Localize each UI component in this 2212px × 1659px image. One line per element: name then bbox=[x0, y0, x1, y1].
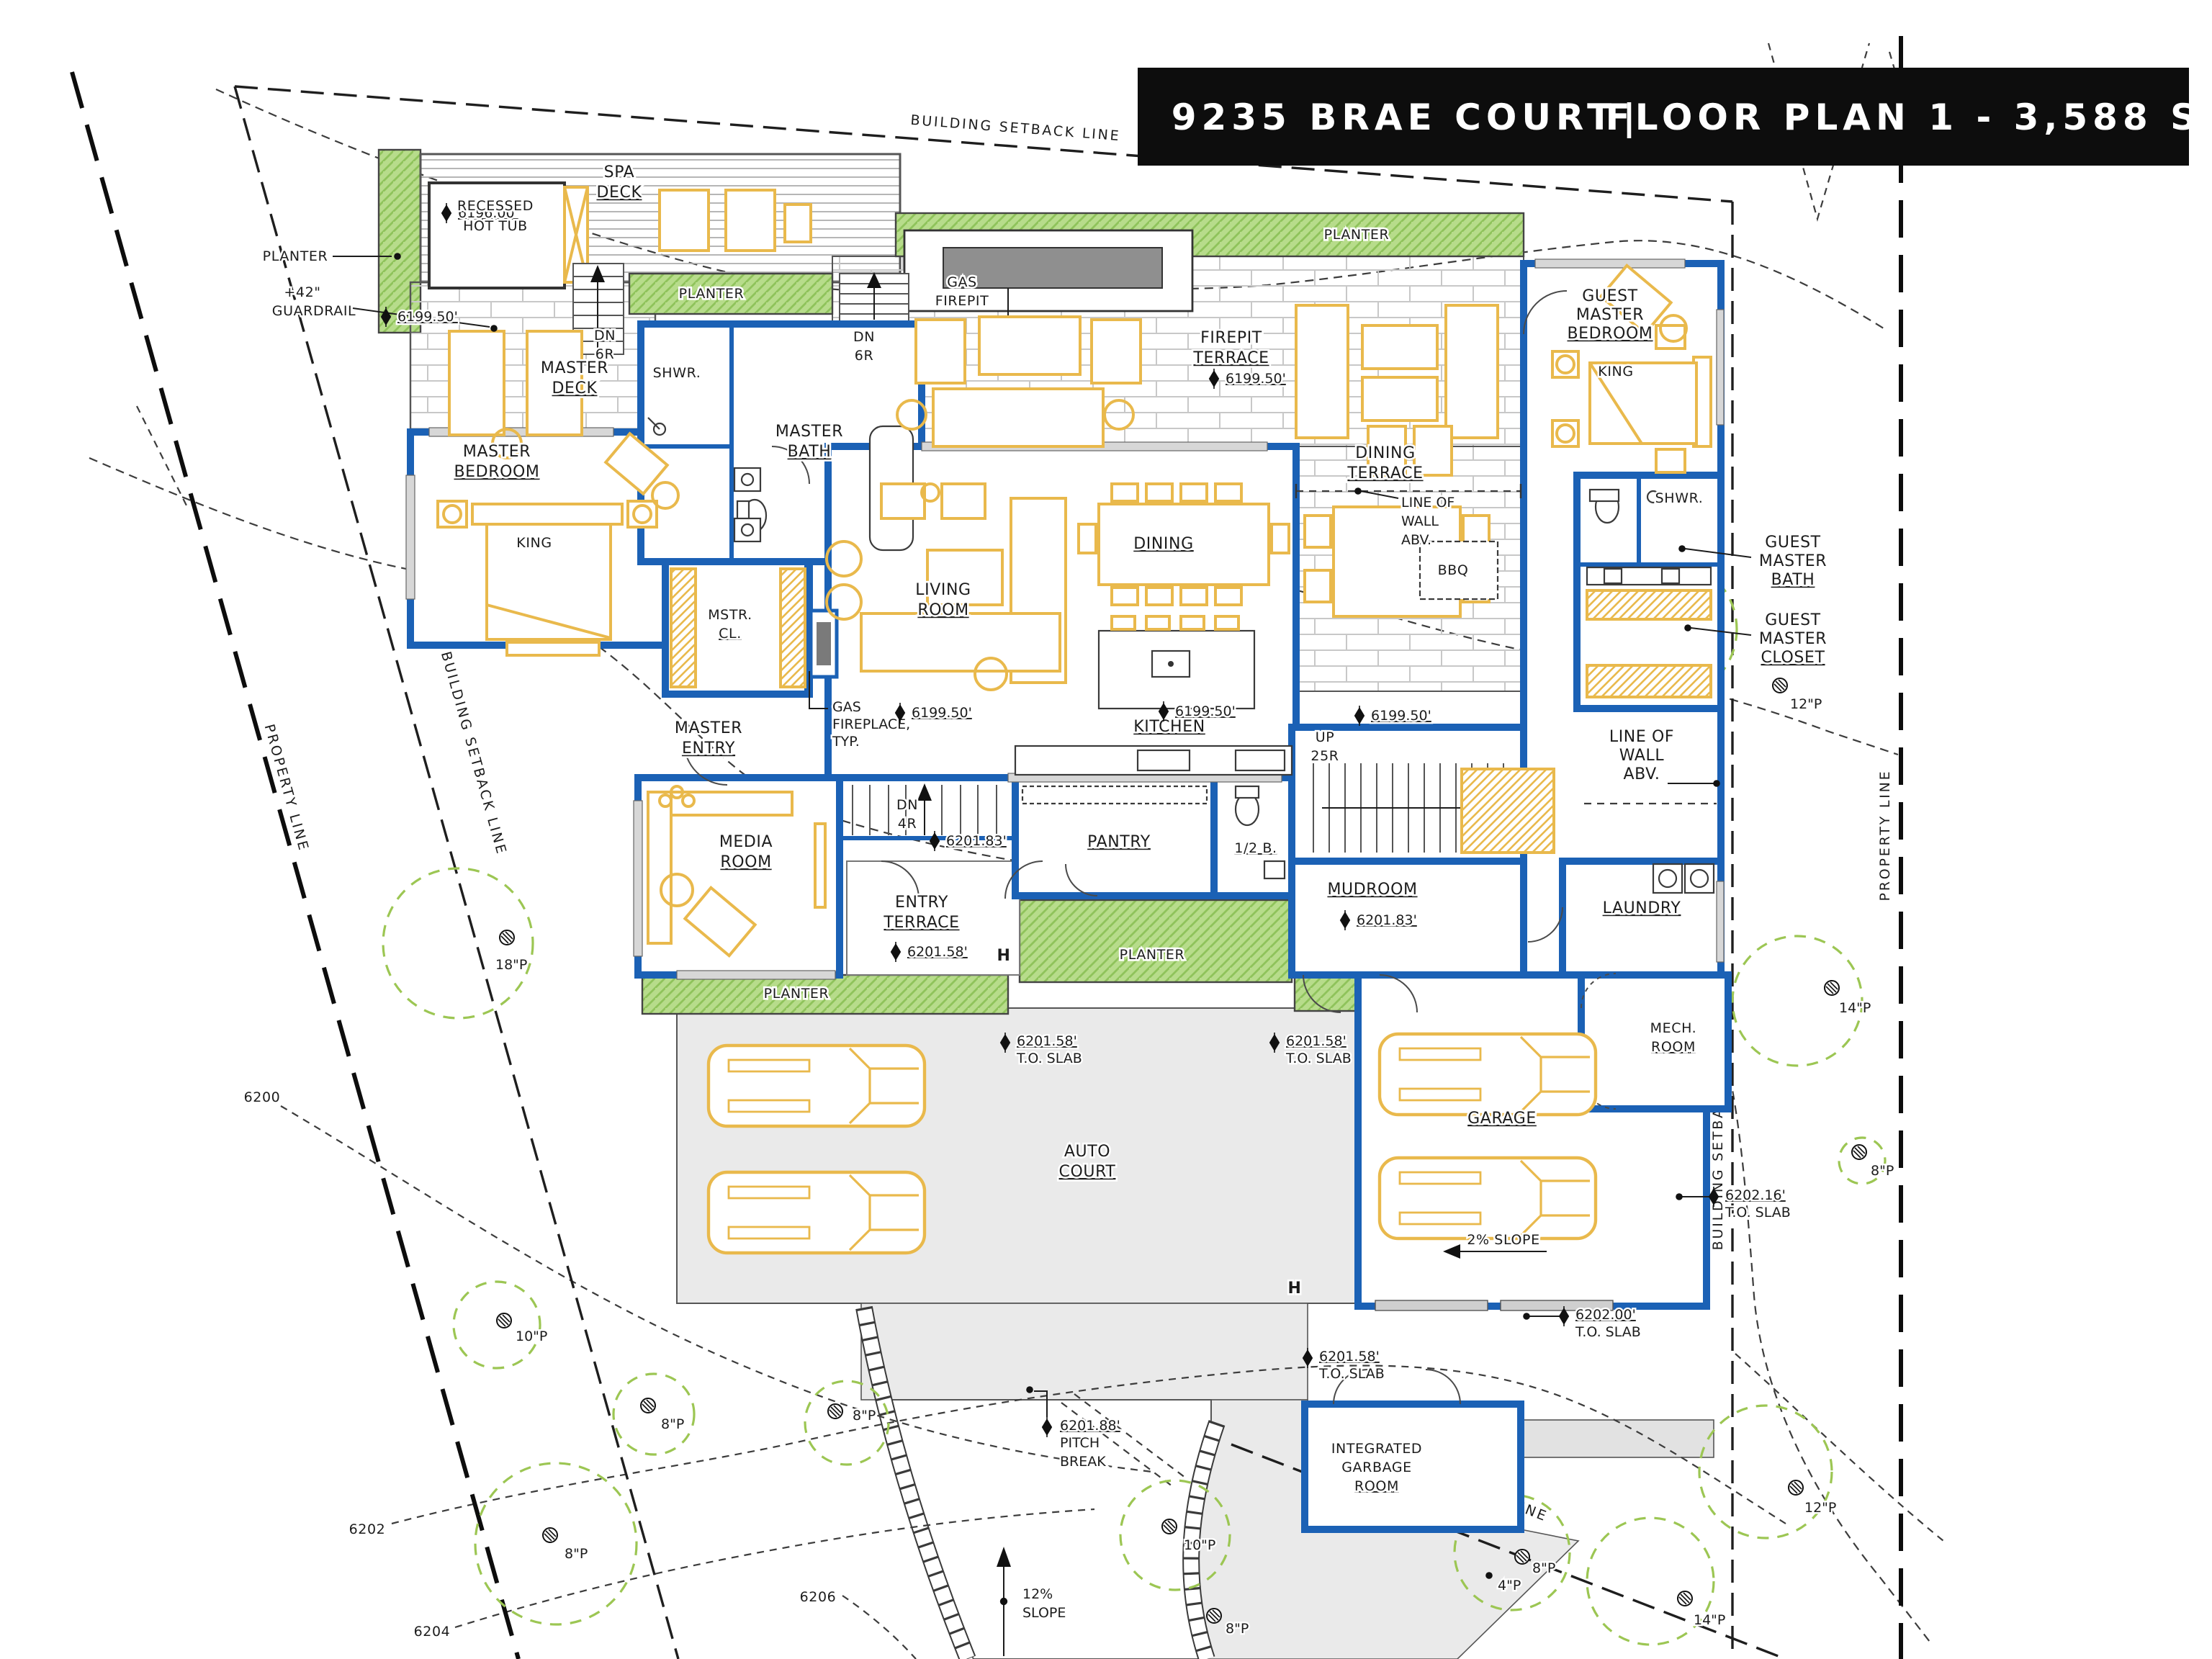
note-gas-fireplace: TYP. bbox=[832, 734, 860, 750]
tree-label-8p: 8"P bbox=[1871, 1163, 1894, 1179]
setback-label-left: BUILDING SETBACK LINE bbox=[438, 649, 510, 857]
label-master-bedroom: MASTER bbox=[463, 443, 531, 461]
label-garbage: ROOM bbox=[1354, 1478, 1399, 1494]
label-guest-closet: CLOSET bbox=[1761, 649, 1825, 667]
label-gas-firepit: FIREPIT bbox=[935, 293, 989, 309]
stair-spa-b bbox=[840, 272, 909, 323]
elev-garage-upper: 6202.16' bbox=[1725, 1187, 1786, 1203]
label-guardrail: GUARDRAIL bbox=[272, 303, 356, 319]
setback-label-top: BUILDING SETBACK LINE bbox=[910, 112, 1122, 144]
to-slab: T.O. SLAB bbox=[1575, 1324, 1641, 1340]
label-auto-court: AUTO bbox=[1064, 1143, 1110, 1161]
label-kitchen: KITCHEN bbox=[1133, 718, 1205, 736]
label-auto-court: COURT bbox=[1059, 1163, 1116, 1181]
tree-label-8p: 8"P bbox=[565, 1546, 588, 1562]
elev-living: 6199.50' bbox=[912, 705, 972, 721]
floor-plan-sheet: BUILDING SETBACK LINE PROPERTY LINE BUIL… bbox=[0, 0, 2212, 1659]
label-living-room: LIVING bbox=[915, 581, 971, 599]
label-guest-bedroom: BEDROOM bbox=[1567, 325, 1653, 343]
label-dining-terrace: TERRACE bbox=[1346, 464, 1423, 482]
label-mech-room: MECH. bbox=[1650, 1020, 1697, 1036]
label-planter-left: PLANTER bbox=[263, 248, 328, 264]
label-master-bath: MASTER bbox=[775, 423, 843, 441]
note-line-of-wall-hall: ABV. bbox=[1623, 765, 1660, 783]
label-master-entry: ENTRY bbox=[682, 739, 735, 757]
label-media-room: MEDIA bbox=[719, 833, 773, 851]
title-address: 9235 BRAE COURT bbox=[1172, 96, 1617, 138]
label-planter-strip: PLANTER bbox=[764, 986, 829, 1002]
title-bar: 9235 BRAE COURT | FLOOR PLAN 1 - 3,588 S… bbox=[1138, 68, 2212, 166]
contour-6200: 6200 bbox=[244, 1089, 281, 1105]
label-garbage: INTEGRATED bbox=[1331, 1441, 1422, 1457]
tree-label-10p: 10"P bbox=[516, 1328, 547, 1344]
tree-label-8p: 8"P bbox=[1532, 1560, 1555, 1576]
label-gas-firepit: GAS bbox=[947, 274, 977, 290]
note-line-of-wall: LINE OF bbox=[1401, 495, 1455, 511]
label-dn4r: DN bbox=[896, 797, 918, 813]
label-master-bath: BATH bbox=[788, 443, 832, 461]
elev-garage-lower: 6202.00' bbox=[1575, 1307, 1636, 1323]
label-dining: DINING bbox=[1133, 535, 1193, 553]
label-media-room: ROOM bbox=[720, 853, 771, 871]
elev-entry-upper: 6201.83' bbox=[946, 833, 1007, 849]
tree-label-8p: 8"P bbox=[1226, 1621, 1249, 1637]
garbage-walkway bbox=[1521, 1420, 1714, 1457]
to-slab: T.O. SLAB bbox=[1285, 1051, 1352, 1066]
title-plan: FLOOR PLAN 1 - 3,588 SF bbox=[1606, 96, 2212, 138]
label-guest-bath: MASTER bbox=[1759, 552, 1827, 570]
label-planter-top: PLANTER bbox=[1324, 227, 1390, 243]
tree-label-14p: 14"P bbox=[1839, 1000, 1871, 1016]
label-bbq: BBQ bbox=[1438, 562, 1469, 578]
elev-slab-a: 6201.58' bbox=[1017, 1033, 1077, 1049]
to-slab: T.O. SLAB bbox=[1725, 1205, 1791, 1220]
elev-firepit: 6199.50' bbox=[1226, 371, 1286, 387]
label-up25r: UP bbox=[1316, 729, 1335, 745]
elev-entry-terrace: 6201.58' bbox=[907, 944, 968, 960]
pitch-break: BREAK bbox=[1060, 1454, 1106, 1470]
planter-center bbox=[1020, 900, 1292, 982]
label-mudroom: MUDROOM bbox=[1327, 881, 1417, 899]
label-mstr-cl: MSTR. bbox=[708, 607, 752, 623]
label-slope-12: 12% bbox=[1022, 1586, 1053, 1602]
label-dn6r: 6R bbox=[855, 348, 874, 364]
tree-label-8p: 8"P bbox=[661, 1416, 684, 1432]
label-guardrail: +42" bbox=[284, 284, 320, 300]
label-king: KING bbox=[516, 535, 552, 551]
contour-6206: 6206 bbox=[800, 1589, 837, 1605]
elev-slab-b: 6201.58' bbox=[1286, 1033, 1346, 1049]
tree-label-10p: 10"P bbox=[1184, 1537, 1215, 1553]
label-dining-terrace: DINING bbox=[1355, 444, 1415, 462]
label-dn6r: DN bbox=[594, 328, 616, 343]
label-mech-room: ROOM bbox=[1651, 1039, 1696, 1055]
label-shwr: SHWR. bbox=[653, 365, 701, 381]
label-half-bath: 1/2 B. bbox=[1234, 840, 1277, 856]
label-guest-bath: GUEST bbox=[1765, 534, 1820, 552]
label-guest-bedroom: GUEST bbox=[1582, 287, 1637, 305]
label-living-room: ROOM bbox=[917, 601, 968, 619]
pitch-break: PITCH bbox=[1060, 1435, 1100, 1451]
room-garbage bbox=[1305, 1404, 1521, 1529]
label-firepit-terrace: FIREPIT bbox=[1200, 329, 1262, 347]
label-spa-deck: DECK bbox=[596, 184, 642, 202]
label-dn4r: 4R bbox=[898, 816, 917, 832]
label-guest-closet: MASTER bbox=[1759, 630, 1827, 648]
label-planter-center: PLANTER bbox=[1120, 947, 1185, 963]
label-guest-bath: BATH bbox=[1771, 571, 1815, 589]
label-slope-12: SLOPE bbox=[1022, 1605, 1066, 1621]
tree-label-12p: 12"P bbox=[1790, 696, 1822, 712]
contour-6202: 6202 bbox=[349, 1521, 386, 1537]
note-line-of-wall-hall: LINE OF bbox=[1609, 728, 1674, 746]
elev-dining-terrace: 6199.50' bbox=[1371, 708, 1431, 724]
tree-label-18p: 18"P bbox=[495, 957, 527, 973]
label-guest-bedroom: MASTER bbox=[1576, 306, 1644, 324]
to-slab: T.O. SLAB bbox=[1016, 1051, 1082, 1066]
label-hot-tub: RECESSED bbox=[457, 198, 534, 214]
elev-pitch: 6201.88' bbox=[1060, 1418, 1120, 1434]
note-line-of-wall: WALL bbox=[1401, 513, 1439, 529]
gas-fireplace bbox=[811, 611, 837, 677]
label-shwr-guest: SHWR. bbox=[1655, 490, 1704, 506]
label-guest-closet: GUEST bbox=[1765, 611, 1820, 629]
elev-master-deck: 6199.50' bbox=[397, 309, 458, 325]
stair-dn4r bbox=[853, 783, 997, 835]
label-up25r: 25R bbox=[1310, 748, 1339, 764]
label-garbage: GARBAGE bbox=[1341, 1460, 1412, 1475]
label-spa-deck: SPA bbox=[604, 163, 635, 181]
tree-label-4p: 4"P bbox=[1498, 1578, 1521, 1593]
label-hot-tub: HOT TUB bbox=[463, 218, 528, 234]
tree-label-8p: 8"P bbox=[853, 1408, 876, 1424]
label-pantry: PANTRY bbox=[1087, 833, 1151, 851]
tree-label-14p: 14"P bbox=[1694, 1612, 1725, 1628]
label-garage: GARAGE bbox=[1467, 1110, 1537, 1128]
label-slope-2: 2% SLOPE bbox=[1467, 1232, 1539, 1248]
elev-kitchen: 6199.50' bbox=[1175, 703, 1236, 719]
label-entry-terrace: ENTRY bbox=[895, 894, 948, 912]
note-gas-fireplace: GAS bbox=[832, 699, 861, 715]
label-dn6r: DN bbox=[853, 329, 875, 345]
label-master-deck: DECK bbox=[552, 379, 597, 397]
label-king-guest: KING bbox=[1598, 364, 1633, 379]
hose-bib: H bbox=[997, 947, 1010, 965]
contour-6204: 6204 bbox=[414, 1624, 451, 1640]
label-laundry: LAUNDRY bbox=[1603, 899, 1681, 917]
label-entry-terrace: TERRACE bbox=[883, 914, 959, 932]
label-master-entry: MASTER bbox=[675, 719, 742, 737]
elev-mudroom: 6201.83' bbox=[1357, 912, 1417, 928]
label-firepit-terrace: TERRACE bbox=[1192, 349, 1269, 367]
note-line-of-wall-hall: WALL bbox=[1619, 747, 1665, 765]
elev-slab-c: 6201.58' bbox=[1319, 1349, 1380, 1364]
label-mstr-cl: CL. bbox=[719, 626, 742, 642]
label-master-bedroom: BEDROOM bbox=[454, 463, 539, 481]
label-planter-mid: PLANTER bbox=[679, 286, 745, 302]
to-slab: T.O. SLAB bbox=[1318, 1366, 1385, 1382]
tree-label-12p: 12"P bbox=[1804, 1500, 1836, 1516]
property-label-right: PROPERTY LINE bbox=[1877, 770, 1893, 902]
label-dn6r: 6R bbox=[595, 346, 615, 362]
hose-bib: H bbox=[1287, 1280, 1301, 1298]
note-line-of-wall: ABV. bbox=[1401, 532, 1431, 548]
